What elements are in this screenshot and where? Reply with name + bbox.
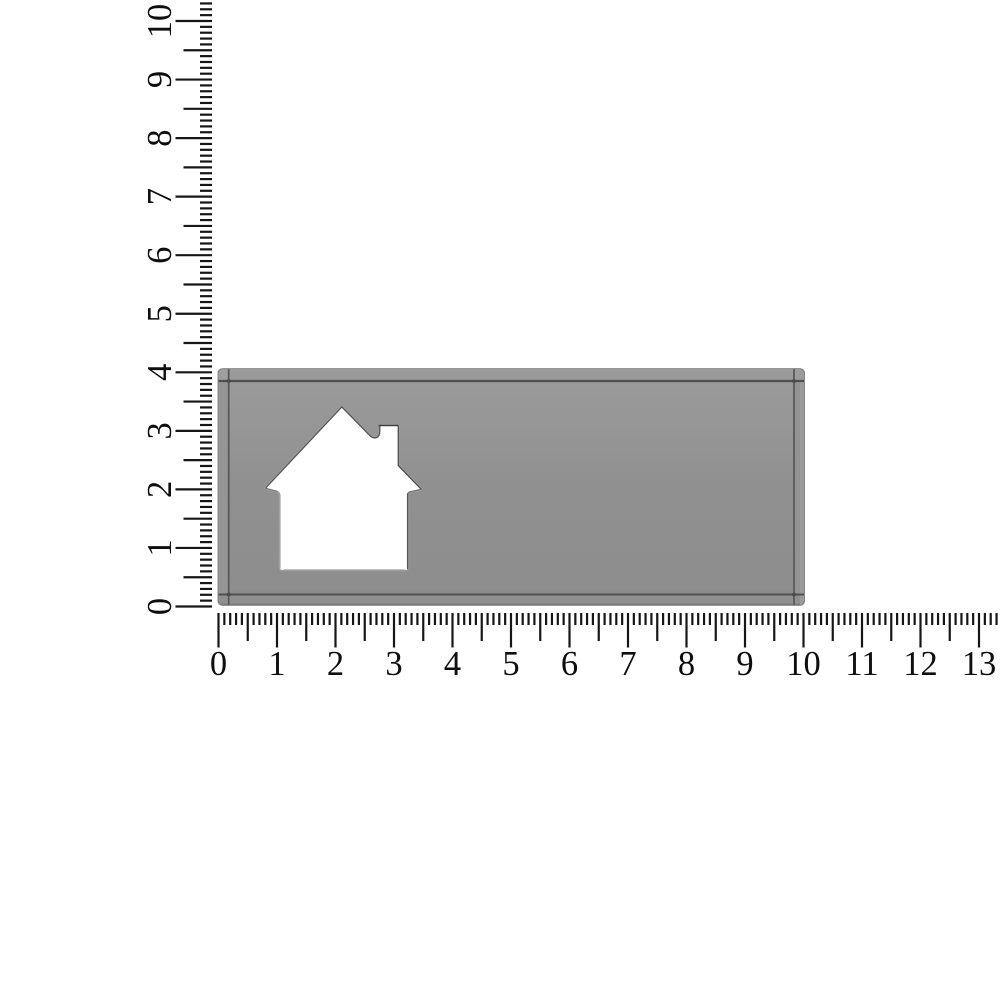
- svg-text:2: 2: [327, 645, 344, 683]
- svg-text:0: 0: [210, 645, 227, 683]
- svg-text:4: 4: [141, 364, 179, 381]
- svg-text:8: 8: [141, 129, 179, 146]
- svg-text:6: 6: [141, 247, 179, 264]
- svg-text:5: 5: [141, 305, 179, 322]
- svg-text:11: 11: [845, 645, 878, 683]
- svg-text:4: 4: [444, 645, 461, 683]
- svg-text:6: 6: [561, 645, 578, 683]
- svg-text:7: 7: [619, 645, 636, 683]
- svg-text:3: 3: [385, 645, 402, 683]
- svg-text:0: 0: [141, 598, 179, 615]
- svg-text:3: 3: [141, 422, 179, 439]
- svg-text:7: 7: [141, 188, 179, 205]
- svg-text:13: 13: [962, 645, 997, 683]
- svg-text:10: 10: [141, 4, 179, 39]
- svg-text:8: 8: [678, 645, 695, 683]
- svg-text:9: 9: [141, 71, 179, 88]
- svg-text:1: 1: [268, 645, 285, 683]
- svg-text:10: 10: [786, 645, 821, 683]
- svg-text:9: 9: [736, 645, 753, 683]
- svg-text:1: 1: [141, 539, 179, 556]
- svg-text:12: 12: [903, 645, 938, 683]
- svg-text:2: 2: [141, 481, 179, 498]
- svg-text:5: 5: [502, 645, 519, 683]
